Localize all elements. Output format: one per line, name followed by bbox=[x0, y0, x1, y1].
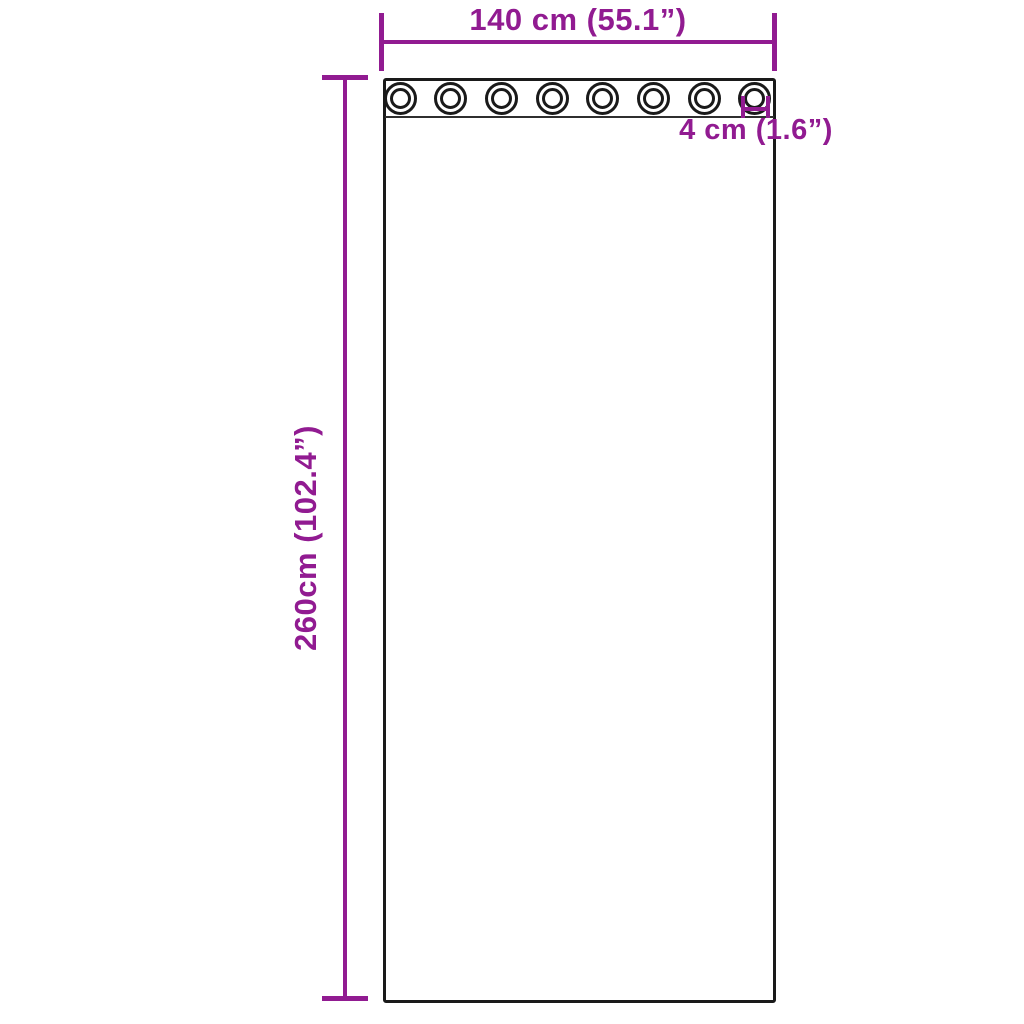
grommet-eyelet bbox=[485, 82, 518, 115]
grommet-hole bbox=[491, 88, 512, 109]
grommet-hole bbox=[592, 88, 613, 109]
grommet-dimension-label: 4 cm (1.6”) bbox=[646, 114, 866, 146]
grommet-dimension-line bbox=[741, 107, 770, 111]
height-dimension-tick-top bbox=[322, 75, 368, 80]
grommet-hole bbox=[643, 88, 664, 109]
curtain-panel bbox=[383, 78, 776, 1003]
grommet-hole bbox=[694, 88, 715, 109]
grommet-hole bbox=[542, 88, 563, 109]
height-dimension-label: 260cm (102.4”) bbox=[289, 398, 323, 678]
grommet-hole bbox=[744, 88, 765, 109]
grommet-eyelet bbox=[434, 82, 467, 115]
grommet-eyelet bbox=[384, 82, 417, 115]
grommet-eyelet bbox=[637, 82, 670, 115]
grommet-eyelet bbox=[536, 82, 569, 115]
width-dimension-line bbox=[381, 40, 775, 44]
height-dimension-line bbox=[343, 77, 347, 1001]
height-dimension-tick-bottom bbox=[322, 996, 368, 1001]
grommet-hole bbox=[440, 88, 461, 109]
grommet-eyelet bbox=[688, 82, 721, 115]
curtain-dimension-diagram: 140 cm (55.1”) 260cm (102.4”) 4 cm (1.6”… bbox=[0, 0, 1024, 1024]
width-dimension-label: 140 cm (55.1”) bbox=[381, 3, 775, 37]
grommet-hole bbox=[390, 88, 411, 109]
